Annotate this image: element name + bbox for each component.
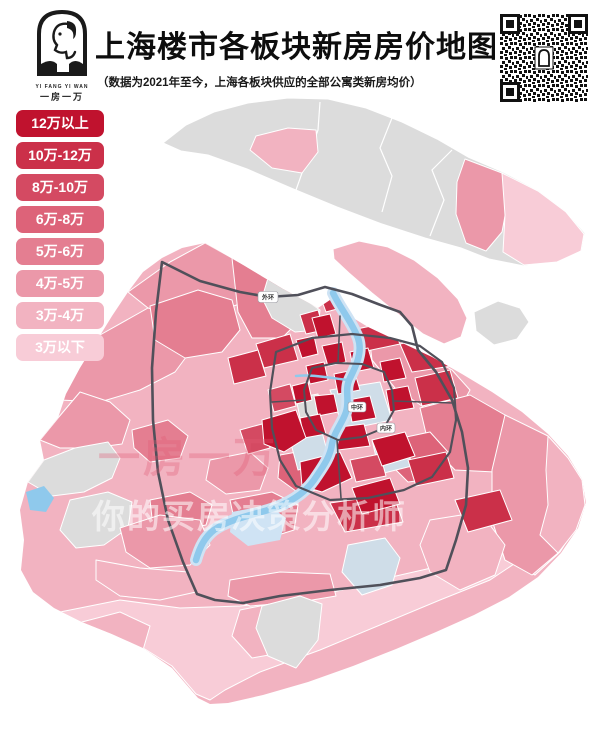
legend-item-6-8wan: 6万-8万 [16, 206, 104, 233]
road-label-text: 外环 [261, 294, 274, 302]
page-subtitle: （数据为2021年至今，上海各板块供应的全部公寓类新房均价） [97, 74, 422, 90]
page: { "header": { "title": "上海楼市各板块新房房价地图", … [0, 0, 600, 740]
legend-item-10-12wan: 10万-12万 [16, 142, 104, 169]
road-label-text: 中环 [351, 404, 363, 412]
road-label-text: 内环 [380, 425, 392, 433]
qr-code-icon [500, 14, 588, 102]
qr-finder-bottom-left [500, 82, 520, 102]
brand-logo: YI FANG YI WAN 一房一万 [30, 6, 94, 104]
map-region-core [314, 394, 338, 416]
region-hengsha-island [474, 301, 529, 345]
qr-center-logo [535, 47, 553, 69]
road-label-neihuan: 内环 [377, 423, 395, 433]
watermark-brand: 一房一万 [98, 434, 278, 481]
legend-item-12wan-plus: 12万以上 [16, 110, 104, 137]
region-chongming-east-fan [502, 173, 584, 265]
logo-caption-cn: 一房一万 [30, 90, 94, 103]
watermark-slogan: 你的买房决策分析师 [91, 498, 407, 535]
legend-item-8-10wan: 8万-10万 [16, 174, 104, 201]
arch-face-logo-icon [31, 6, 93, 78]
legend-item-5-6wan: 5万-6万 [16, 238, 104, 265]
legend-item-below-3wan: 3万以下 [16, 334, 104, 361]
qr-finder-top-right [568, 14, 588, 34]
legend-item-3-4wan: 3万-4万 [16, 302, 104, 329]
price-legend: 12万以上 10万-12万 8万-10万 6万-8万 5万-6万 4万-5万 3… [16, 110, 106, 366]
page-title: 上海楼市各板块新房房价地图 [95, 22, 498, 66]
road-label-zhonghuan: 中环 [348, 402, 366, 412]
header: YI FANG YI WAN 一房一万 上海楼市各板块新房房价地图 （数据为20… [0, 0, 600, 108]
qr-finder-top-left [500, 14, 520, 34]
road-label-waihuan: 外环 [258, 292, 278, 303]
legend-item-4-5wan: 4万-5万 [16, 270, 104, 297]
